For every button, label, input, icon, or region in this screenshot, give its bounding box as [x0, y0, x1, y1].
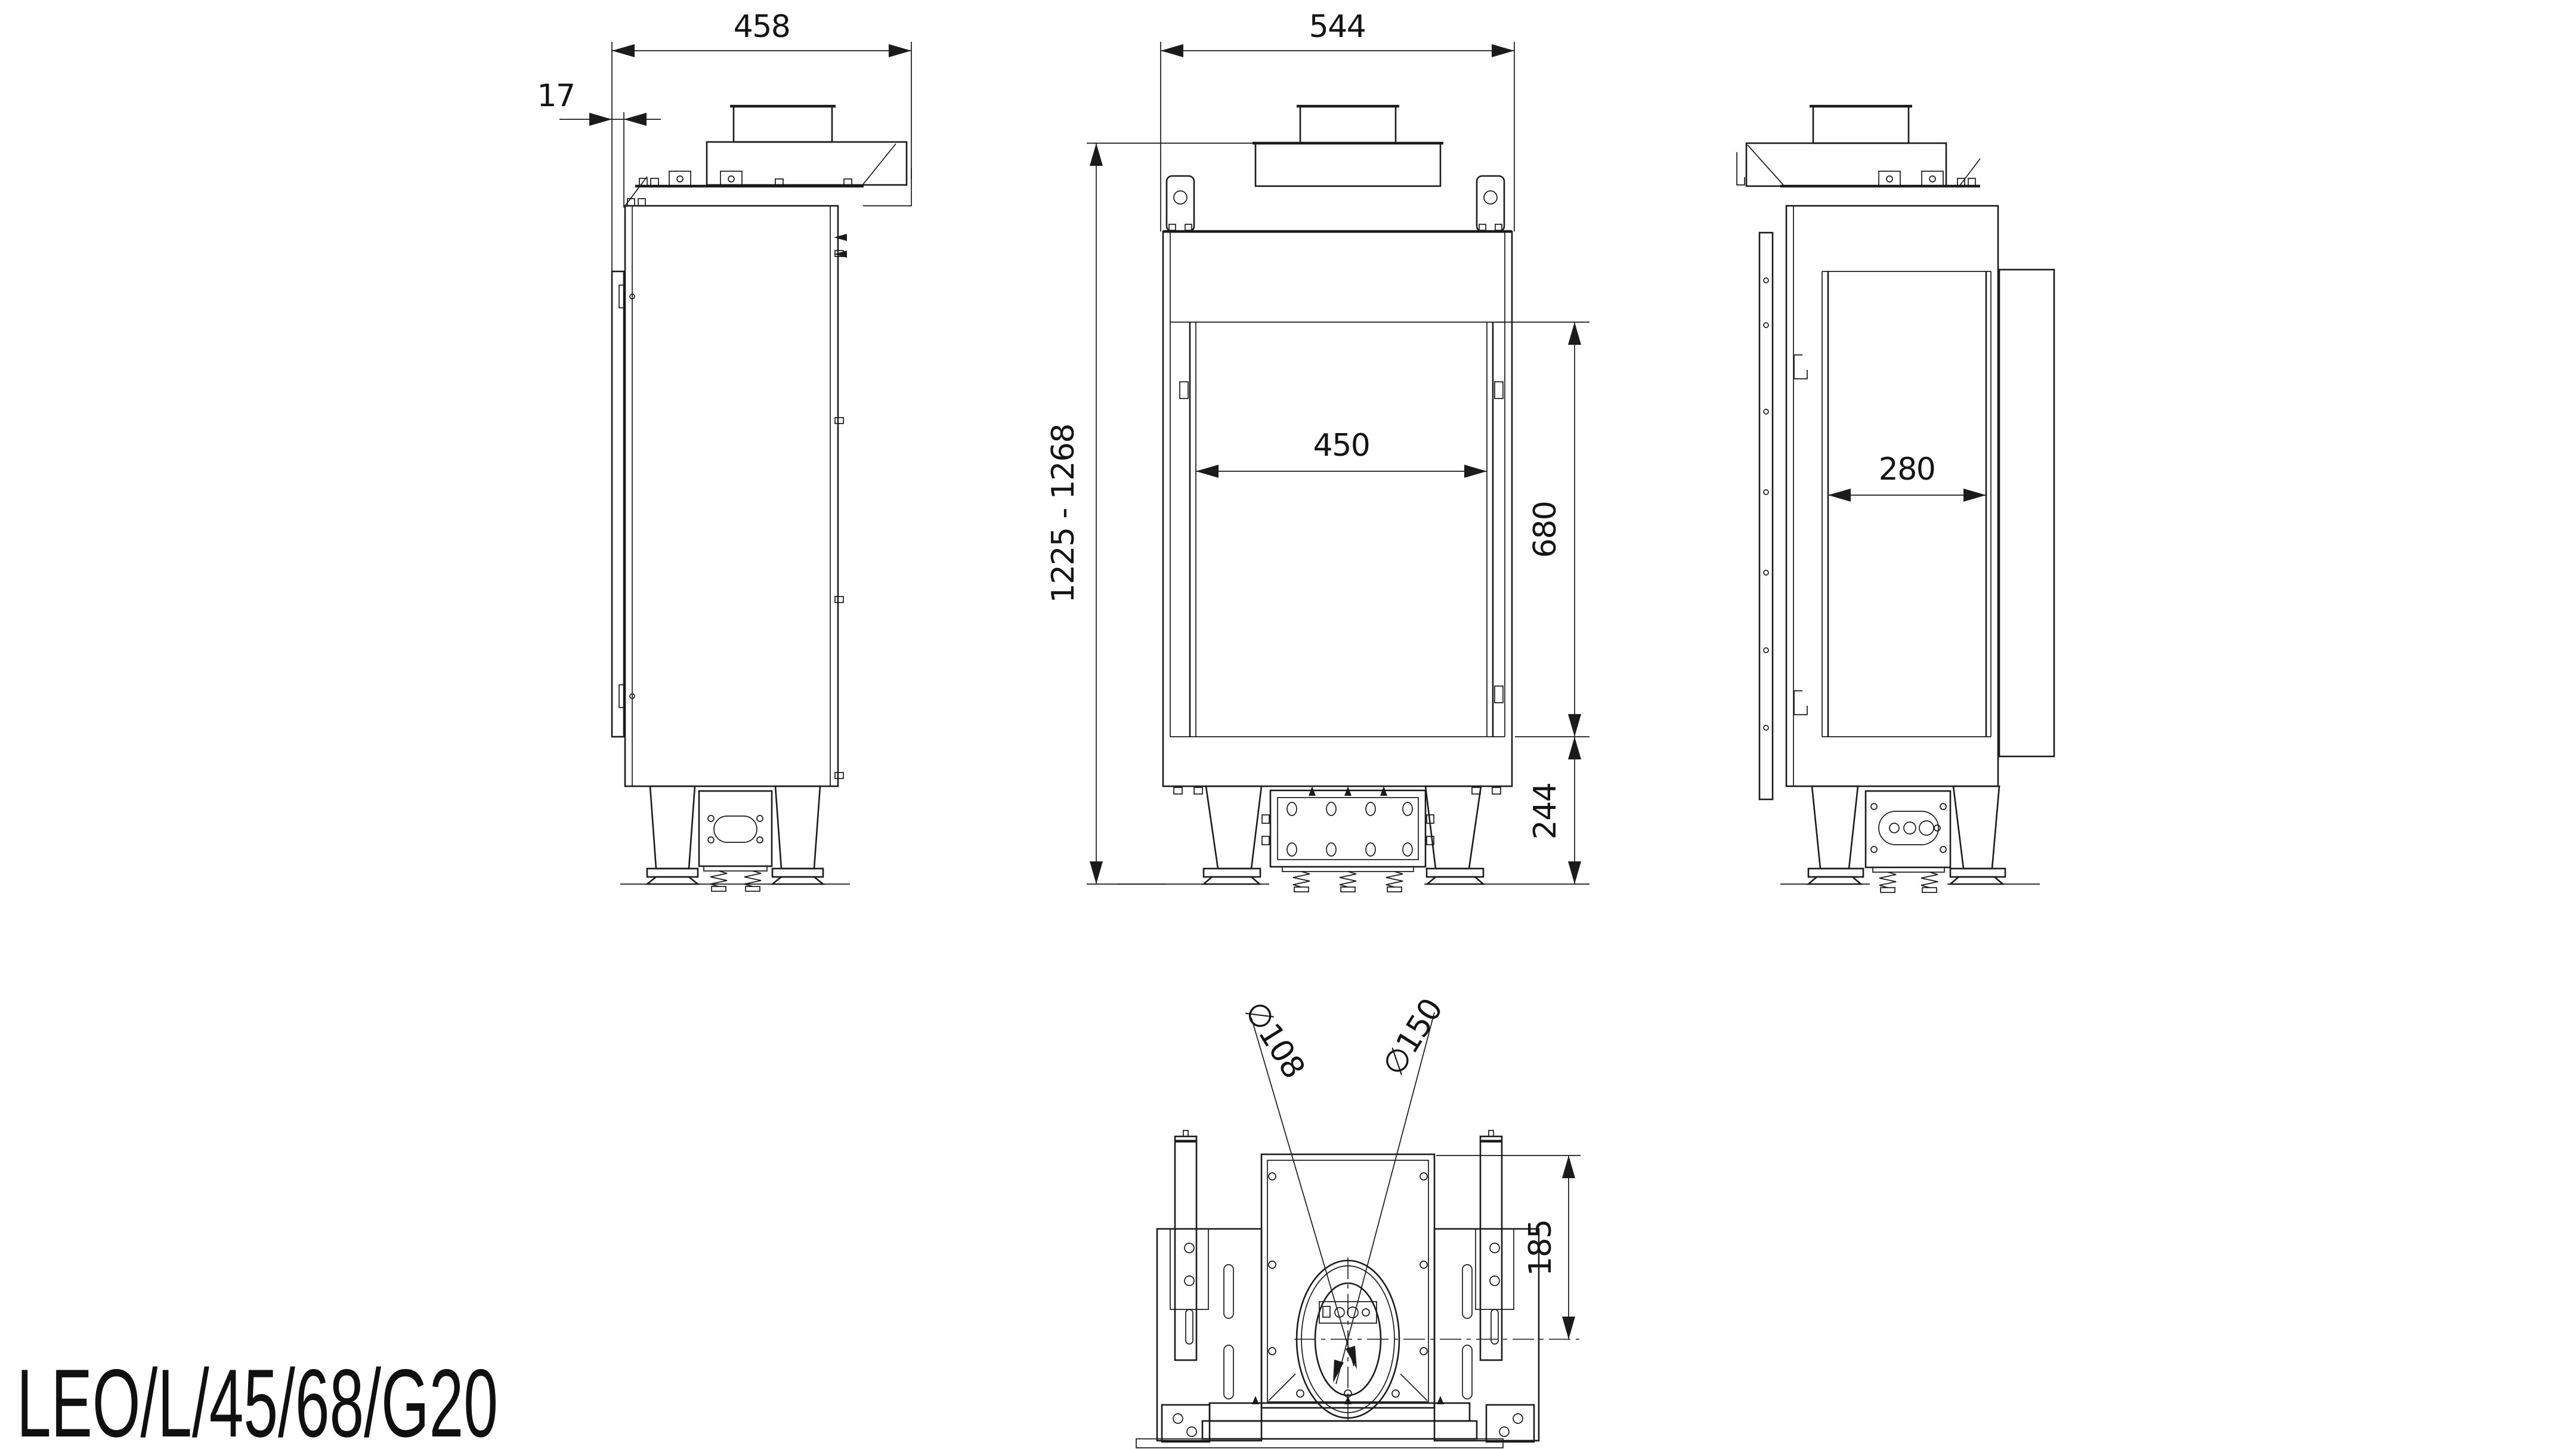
bolt: [627, 199, 635, 206]
top-view: ∅108 ∅150 185: [1136, 993, 1581, 1448]
front-trim-band: [1202, 1421, 1477, 1439]
clamp-hole: [677, 176, 683, 182]
clamp-bracket: [1879, 171, 1900, 186]
drawing-title: LEO/L/45/68/G20: [17, 1349, 498, 1449]
hood-fold-line: [1748, 145, 1783, 185]
dim-channel-width-280: 280: [1828, 452, 1986, 502]
screw-hole: [1940, 804, 1946, 810]
foot-plate: [1204, 869, 1260, 877]
spring-nut: [1341, 887, 1355, 892]
bolt-slot: [1366, 843, 1375, 856]
pin: [1344, 1396, 1352, 1404]
mounting-hole: [1484, 191, 1497, 204]
flue-pipe: [734, 106, 832, 142]
dim-label-glass-offset: 17: [537, 78, 574, 114]
foot-plate: [1808, 869, 1863, 877]
bolt-hole: [1420, 1348, 1427, 1355]
clamp-hole: [1929, 176, 1935, 182]
clamp-hole: [728, 176, 734, 182]
pin: [1252, 1396, 1259, 1404]
valve-detail: [1323, 1306, 1330, 1317]
spring-nut: [712, 886, 726, 891]
bolt: [835, 773, 843, 778]
bolt: [835, 418, 843, 424]
manifold-plate: [1879, 811, 1938, 845]
rivet: [1764, 490, 1768, 495]
foot-plate: [1427, 869, 1483, 877]
dim-flue-inner-108: ∅108: [1237, 995, 1357, 1369]
dim-arrow: [1562, 1156, 1575, 1178]
dim-arrow: [1568, 714, 1581, 737]
bolt-hole: [1269, 1261, 1276, 1268]
mounting-hole: [1174, 191, 1187, 204]
dim-height-range: 1225 - 1268: [1046, 143, 1258, 884]
screw-hole: [1871, 804, 1877, 810]
body-outline: [625, 206, 838, 786]
dim-depth-458: 458: [612, 9, 911, 271]
dim-label-channel-width: 280: [1879, 452, 1935, 487]
hood: [1255, 143, 1440, 186]
screw-hole: [708, 815, 714, 821]
flue-pipe: [1300, 106, 1396, 143]
dim-arrow: [1464, 465, 1487, 478]
rail-bracket: [1476, 1229, 1514, 1309]
vent-mark: [834, 234, 847, 241]
bolt-slot: [1287, 802, 1297, 815]
screw-hole: [1871, 846, 1877, 852]
rivet: [1764, 725, 1768, 730]
miter-line: [1269, 1374, 1295, 1401]
hood: [707, 142, 907, 185]
spring-nut: [1387, 887, 1402, 892]
dim-label-glass-width: 450: [1313, 428, 1370, 464]
leg: [1953, 786, 1999, 869]
dim-arrow: [1492, 44, 1514, 57]
spring-nut: [1294, 887, 1309, 892]
dim-arrow: [1963, 489, 1986, 502]
dim-flue-offset-185: 185: [1436, 1156, 1581, 1339]
screw-hole: [757, 837, 763, 843]
glass-panel-edge: [1999, 270, 2054, 756]
bolt-slot: [1366, 802, 1375, 815]
spring: [1386, 872, 1403, 887]
bolt-slot: [1403, 843, 1412, 856]
spring: [1879, 872, 1896, 888]
dim-arrow: [1568, 861, 1581, 884]
screw-hole: [1490, 1276, 1499, 1286]
bolt: [1194, 787, 1202, 794]
miter-line: [1400, 1374, 1427, 1401]
bolt-hole: [1420, 1261, 1427, 1268]
dim-label-base-height: 244: [1527, 783, 1563, 840]
firebox-inner-frame: [1267, 1160, 1428, 1402]
bolt-hole: [1297, 1390, 1304, 1397]
rivet: [1764, 278, 1768, 283]
hood-fold-line: [863, 144, 896, 184]
bolt-slot: [1403, 802, 1412, 815]
bolt-hole: [1392, 1390, 1399, 1397]
rivet: [1764, 570, 1768, 575]
bolt: [1968, 178, 1975, 186]
dim-arrow: [1828, 489, 1851, 502]
dim-base-height-244: 244: [1527, 737, 1589, 884]
bolt: [1185, 224, 1192, 230]
bolt-slot: [1326, 843, 1336, 856]
clip-hook: [1794, 691, 1807, 715]
leader-arrow: [1346, 1346, 1357, 1369]
pin: [1437, 1396, 1444, 1404]
gas-port: [1904, 822, 1916, 834]
bolt-hole: [1499, 1427, 1509, 1436]
dim-arrow: [624, 113, 647, 126]
bolt: [1262, 836, 1269, 845]
body-outline: [1163, 231, 1512, 786]
hanger-hook: [1737, 152, 1745, 185]
dim-label-glass-height: 680: [1527, 502, 1563, 558]
bolt: [835, 597, 843, 603]
foot-pad: [647, 877, 698, 884]
slot-hole: [1186, 1309, 1193, 1344]
dim-arrow: [1562, 1317, 1575, 1339]
dim-glass-width-450: 450: [1196, 428, 1487, 478]
pin: [1183, 1130, 1188, 1136]
rear-flap: [1959, 159, 1980, 186]
dim-arrow: [1568, 737, 1581, 759]
rivet: [1764, 323, 1768, 328]
gas-port: [1890, 823, 1899, 833]
flue-pipe: [1813, 106, 1909, 143]
dim-glass-offset-17: 17: [537, 78, 661, 208]
front-flap: [625, 177, 647, 206]
foot-pad: [1950, 877, 2003, 884]
dim-arrow: [1196, 465, 1219, 478]
bolt-hole: [1269, 1173, 1276, 1180]
leader-arrow: [1333, 1360, 1344, 1383]
spring: [1340, 872, 1356, 887]
bolt: [1495, 224, 1502, 230]
leg: [650, 786, 695, 869]
dim-label-width: 544: [1309, 9, 1366, 45]
dim-label-flue-offset: 185: [1523, 1220, 1558, 1277]
screw-hole: [757, 815, 763, 821]
latch: [1495, 686, 1503, 703]
clamp-hole: [1887, 176, 1892, 182]
bolt: [1262, 815, 1269, 823]
left-side-view: 458 17: [537, 9, 911, 891]
slot-hole: [1224, 1345, 1233, 1399]
bolt: [1169, 224, 1176, 230]
foot-pad: [1427, 877, 1483, 884]
bolt: [1492, 787, 1501, 794]
screw-hole: [708, 837, 714, 843]
spring-nut: [1881, 888, 1895, 892]
dim-width-544: 544: [1161, 9, 1514, 231]
bolt: [638, 199, 645, 206]
gas-port: [1919, 821, 1934, 835]
pin: [1489, 1130, 1493, 1136]
front-view: 544 450 1225 - 1268 680: [1046, 9, 1589, 892]
spring-nut: [746, 886, 760, 891]
rivet: [1764, 409, 1768, 414]
rail-bracket: [1170, 1229, 1208, 1309]
control-opening: [714, 816, 757, 842]
dim-glass-height-680: 680: [1496, 322, 1589, 737]
slot-hole: [1462, 1345, 1472, 1399]
dim-arrow: [1161, 44, 1183, 57]
control-box: [699, 791, 772, 866]
screw-hole: [1185, 1243, 1194, 1253]
leg: [1812, 786, 1858, 869]
spring-nut: [1922, 888, 1937, 892]
foot-pad: [1808, 877, 1861, 884]
hood: [1746, 143, 1946, 186]
screw-hole: [1940, 846, 1946, 852]
dim-label-depth: 458: [734, 9, 790, 45]
bolt-slot: [1326, 802, 1336, 815]
leg: [1425, 786, 1481, 869]
front-trim-band: [1210, 1403, 1470, 1421]
gas-port: [1934, 825, 1940, 831]
dim-label-flue-inner: ∅108: [1237, 995, 1311, 1084]
leg: [775, 786, 820, 869]
latch: [1495, 382, 1503, 398]
bolt: [1174, 787, 1182, 794]
bolt-hole: [1187, 1427, 1196, 1436]
title-block: LEO/L/45/68/G20: [17, 1349, 498, 1449]
rear-shield-strip: [1759, 233, 1773, 799]
latch: [1180, 382, 1188, 398]
leg: [1206, 786, 1261, 869]
foot-pad: [1204, 877, 1260, 884]
bolt-hole: [1173, 1414, 1183, 1423]
clip-hook: [1794, 355, 1807, 379]
bolt-hole: [1269, 1348, 1276, 1355]
bolt: [1472, 787, 1480, 794]
spring: [1293, 872, 1310, 887]
rear-hook-bracket: [863, 168, 911, 206]
clamp-bracket: [1922, 171, 1943, 186]
bolt: [1479, 224, 1486, 230]
fireplace-technical-drawing: 458 17: [0, 0, 2576, 1449]
right-side-view: 280: [1737, 106, 2054, 892]
rivet: [1764, 648, 1768, 653]
screw-hole: [1490, 1243, 1499, 1253]
screw-hole: [1185, 1276, 1194, 1286]
valve-port: [1362, 1309, 1369, 1316]
spring: [1921, 872, 1938, 888]
dim-arrow: [589, 113, 612, 126]
dim-arrow: [1090, 861, 1103, 884]
foot-plate: [772, 869, 823, 877]
dim-flue-outer-150: ∅150: [1333, 993, 1450, 1384]
bolt-hole: [1420, 1173, 1427, 1180]
slot-hole: [1462, 1265, 1472, 1318]
foot-plate: [1950, 869, 2005, 877]
dim-arrow: [1568, 322, 1581, 345]
dim-arrow: [612, 44, 635, 57]
foot-plate: [647, 869, 698, 877]
dim-arrow: [889, 44, 911, 57]
dim-label-height-range: 1225 - 1268: [1046, 424, 1081, 603]
dim-arrow: [1090, 143, 1103, 166]
foot-pad: [772, 877, 823, 884]
clamp-bracket: [720, 171, 742, 186]
slot-hole: [1224, 1265, 1233, 1318]
glass-panel-edge: [612, 271, 624, 737]
dim-label-flue-outer: ∅150: [1375, 993, 1449, 1082]
corner-block: [1486, 1405, 1534, 1442]
clamp-bracket: [669, 171, 691, 186]
bolt-slot: [1287, 843, 1297, 856]
bolt-hole: [1513, 1414, 1523, 1423]
control-box-inner: [1278, 798, 1418, 860]
